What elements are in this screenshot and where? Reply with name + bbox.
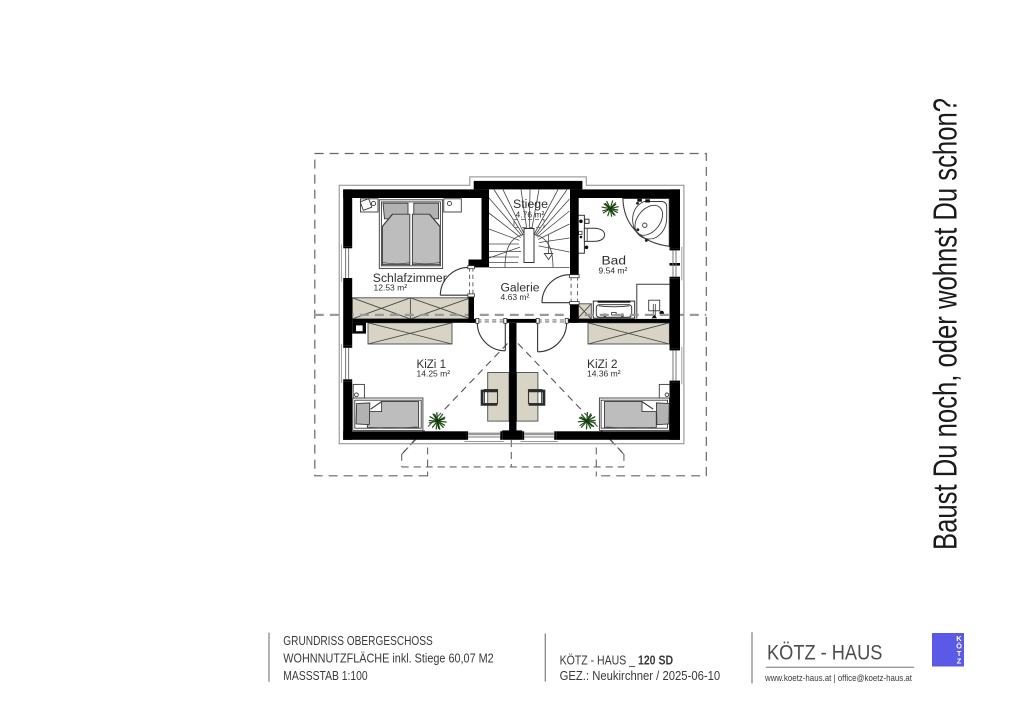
svg-text:MASSSTAB 1:100: MASSSTAB 1:100 (283, 668, 367, 683)
svg-text:4.63 m²: 4.63 m² (501, 292, 530, 302)
svg-text:14.36 m²: 14.36 m² (587, 369, 621, 379)
svg-text:GRUNDRISS OBERGESCHOSS: GRUNDRISS OBERGESCHOSS (283, 633, 433, 648)
svg-text:KÖTZ - HAUS: KÖTZ - HAUS (767, 642, 882, 665)
svg-text:14.25 m²: 14.25 m² (417, 369, 451, 379)
svg-text:Z: Z (957, 657, 962, 666)
svg-text:GEZ.: Neukirchner / 2025-06-10: GEZ.: Neukirchner / 2025-06-10 (560, 668, 721, 683)
svg-text:KÖTZ - HAUS _ 120 SD: KÖTZ - HAUS _ 120 SD (560, 653, 674, 668)
svg-text:9.54 m²: 9.54 m² (599, 266, 628, 276)
svg-text:Baust Du noch, oder wohnst Du: Baust Du noch, oder wohnst Du schon? (927, 98, 964, 550)
svg-text:4.76 m²: 4.76 m² (516, 210, 545, 220)
svg-text:www.koetz-haus.at | office@koe: www.koetz-haus.at | office@koetz-haus.at (764, 673, 912, 684)
svg-text:WOHNNUTZFLÄCHE inkl. Stiege 60: WOHNNUTZFLÄCHE inkl. Stiege 60,07 M2 (283, 650, 493, 665)
svg-text:12.53 m²: 12.53 m² (374, 283, 408, 293)
